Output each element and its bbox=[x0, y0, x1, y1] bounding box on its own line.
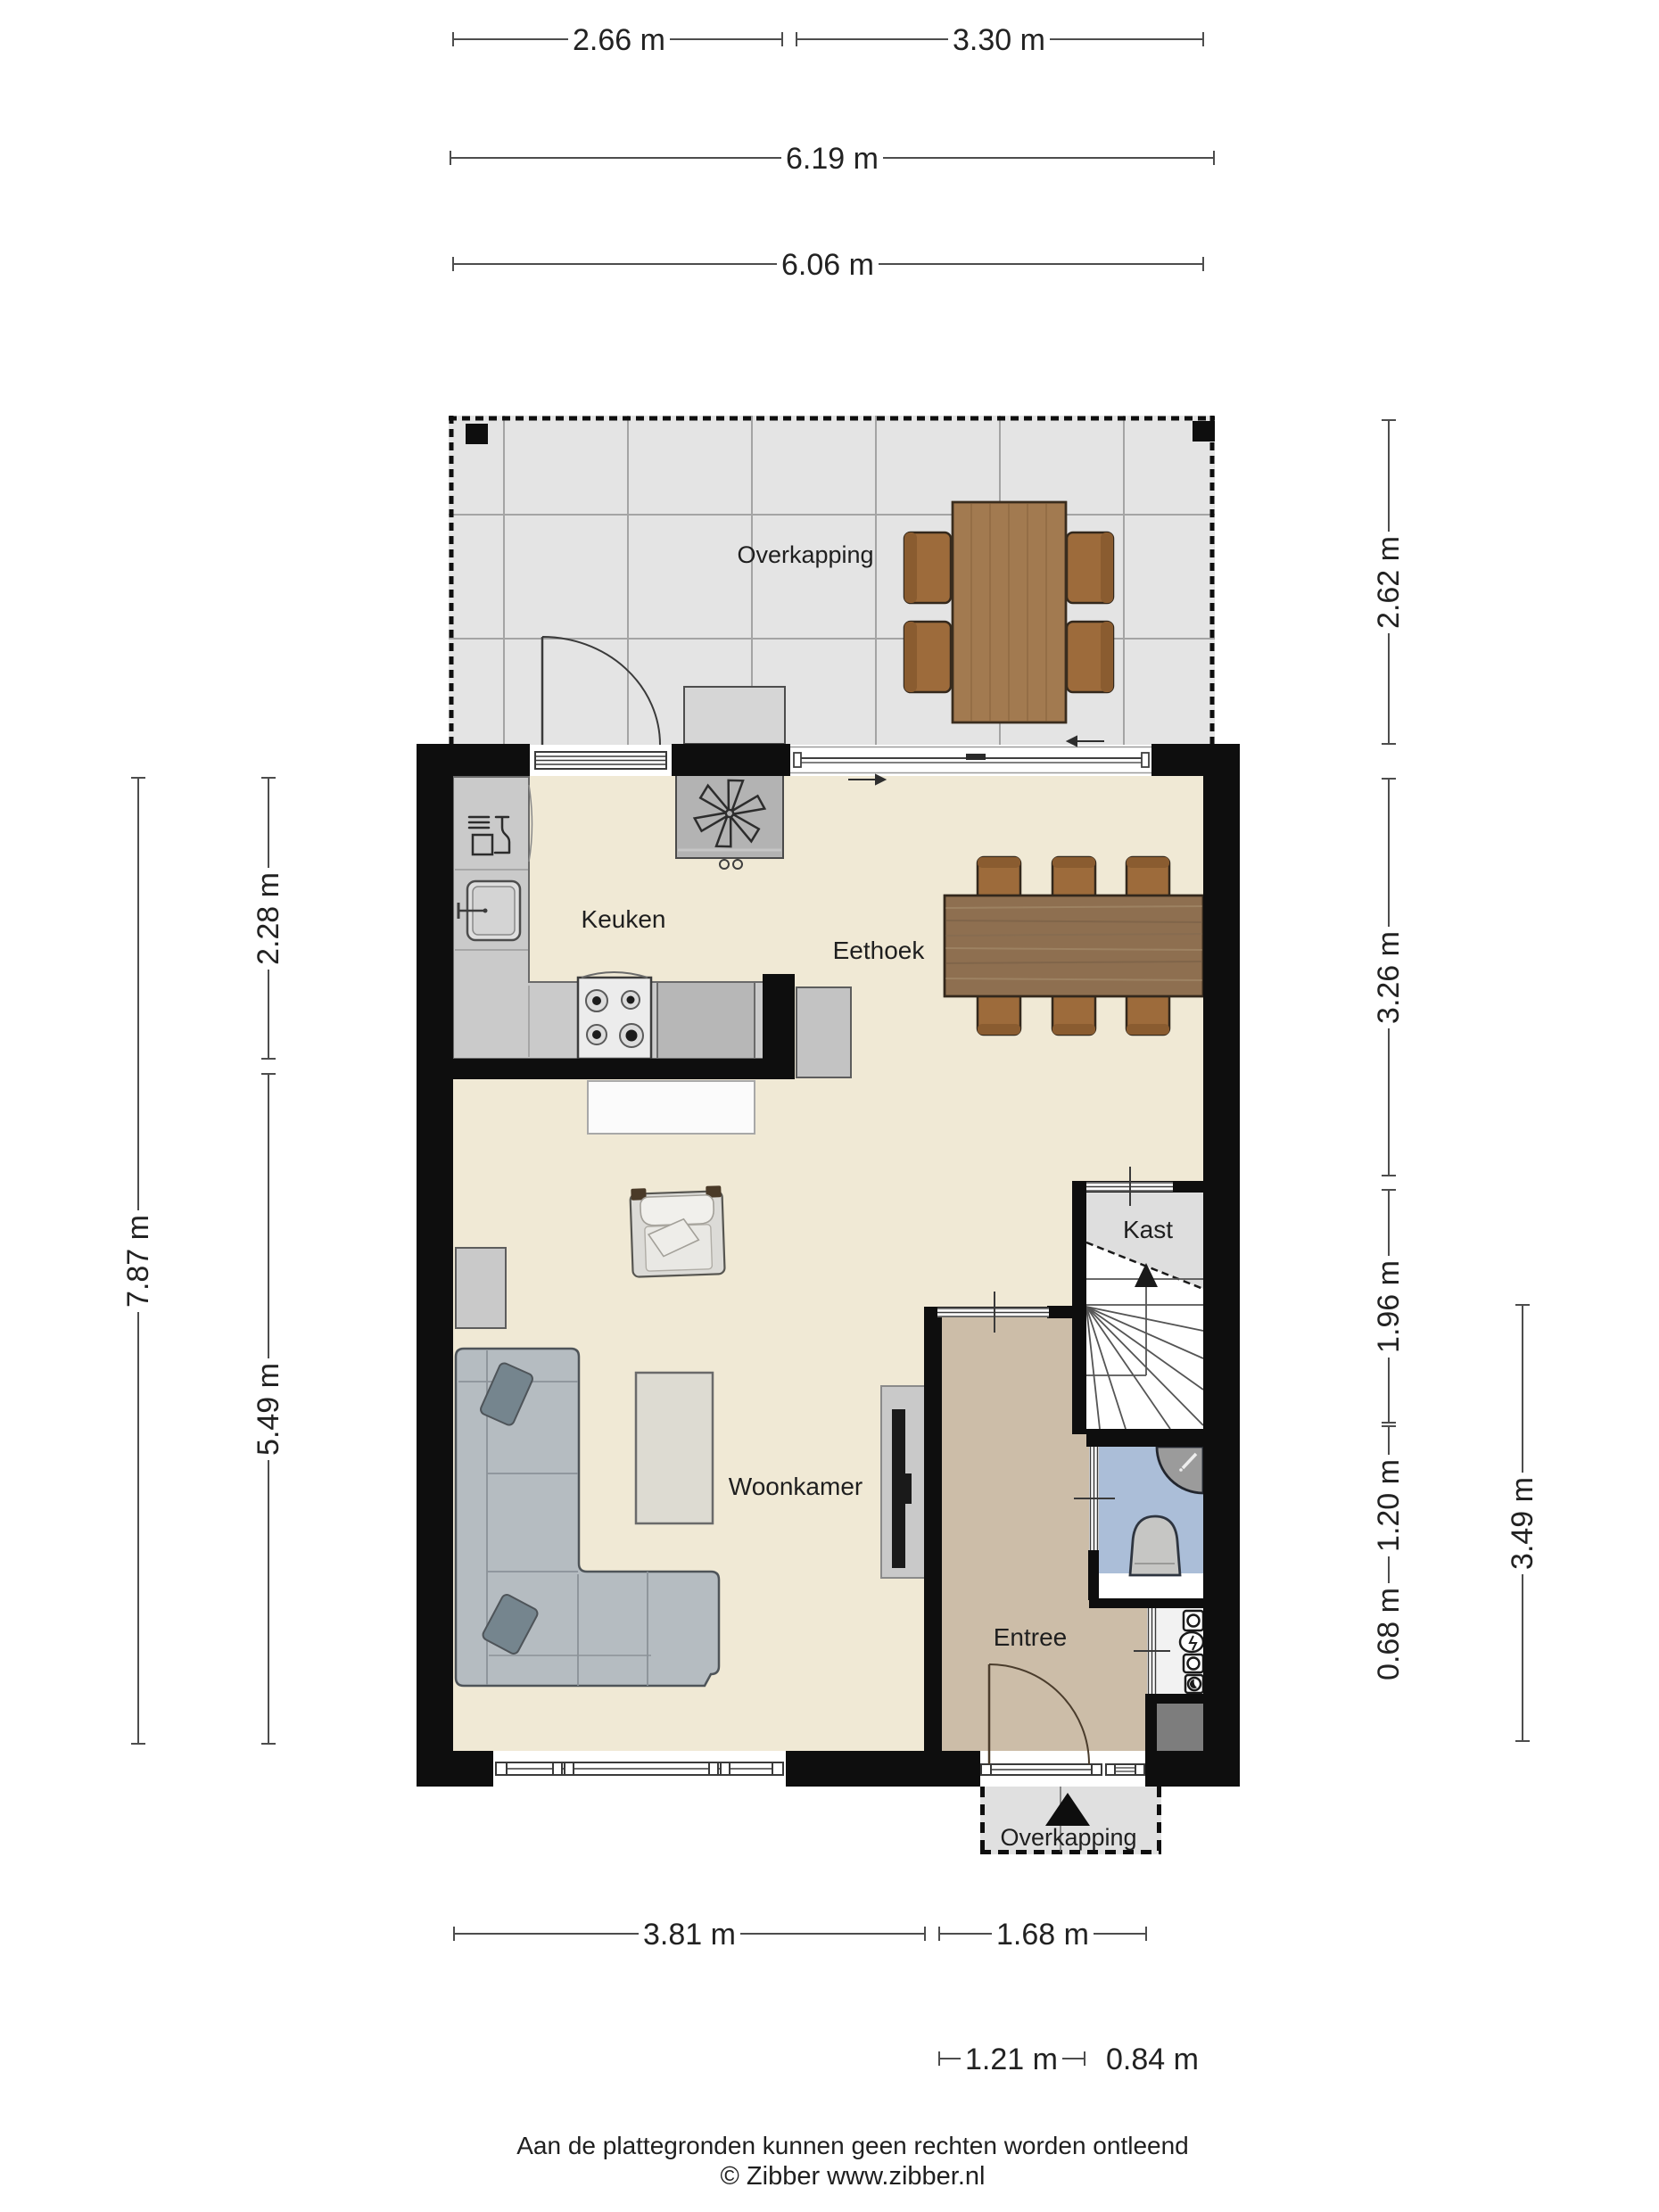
svg-text:2.66 m: 2.66 m bbox=[573, 23, 665, 57]
svg-text:7.87 m: 7.87 m bbox=[121, 1215, 155, 1308]
svg-text:5.49 m: 5.49 m bbox=[252, 1363, 285, 1456]
svg-text:3.81 m: 3.81 m bbox=[643, 1918, 736, 1952]
svg-text:1.96 m: 1.96 m bbox=[1372, 1260, 1406, 1353]
svg-text:1.68 m: 1.68 m bbox=[996, 1918, 1089, 1952]
svg-text:1.20 m: 1.20 m bbox=[1372, 1459, 1406, 1552]
svg-text:© Zibber www.zibber.nl: © Zibber www.zibber.nl bbox=[721, 2162, 986, 2191]
svg-text:3.26 m: 3.26 m bbox=[1372, 931, 1406, 1024]
svg-text:2.28 m: 2.28 m bbox=[252, 872, 285, 965]
svg-text:0.84 m: 0.84 m bbox=[1106, 2043, 1199, 2076]
svg-text:1.21 m: 1.21 m bbox=[965, 2043, 1058, 2076]
svg-text:Overkapping: Overkapping bbox=[1000, 1824, 1136, 1851]
svg-text:Aan de plattegronden kunnen ge: Aan de plattegronden kunnen geen rechten… bbox=[516, 2132, 1188, 2159]
svg-text:Overkapping: Overkapping bbox=[737, 541, 873, 568]
svg-text:0.68 m: 0.68 m bbox=[1372, 1588, 1406, 1680]
svg-text:6.19 m: 6.19 m bbox=[786, 142, 879, 176]
svg-text:2.62 m: 2.62 m bbox=[1372, 536, 1406, 629]
svg-text:Keuken: Keuken bbox=[582, 905, 666, 933]
svg-text:Woonkamer: Woonkamer bbox=[729, 1473, 863, 1500]
svg-text:3.49 m: 3.49 m bbox=[1506, 1477, 1539, 1570]
svg-text:3.30 m: 3.30 m bbox=[953, 23, 1045, 57]
svg-text:Entree: Entree bbox=[994, 1623, 1068, 1651]
svg-text:Eethoek: Eethoek bbox=[833, 937, 926, 964]
svg-text:6.06 m: 6.06 m bbox=[781, 248, 874, 282]
svg-text:Kast: Kast bbox=[1123, 1216, 1173, 1243]
